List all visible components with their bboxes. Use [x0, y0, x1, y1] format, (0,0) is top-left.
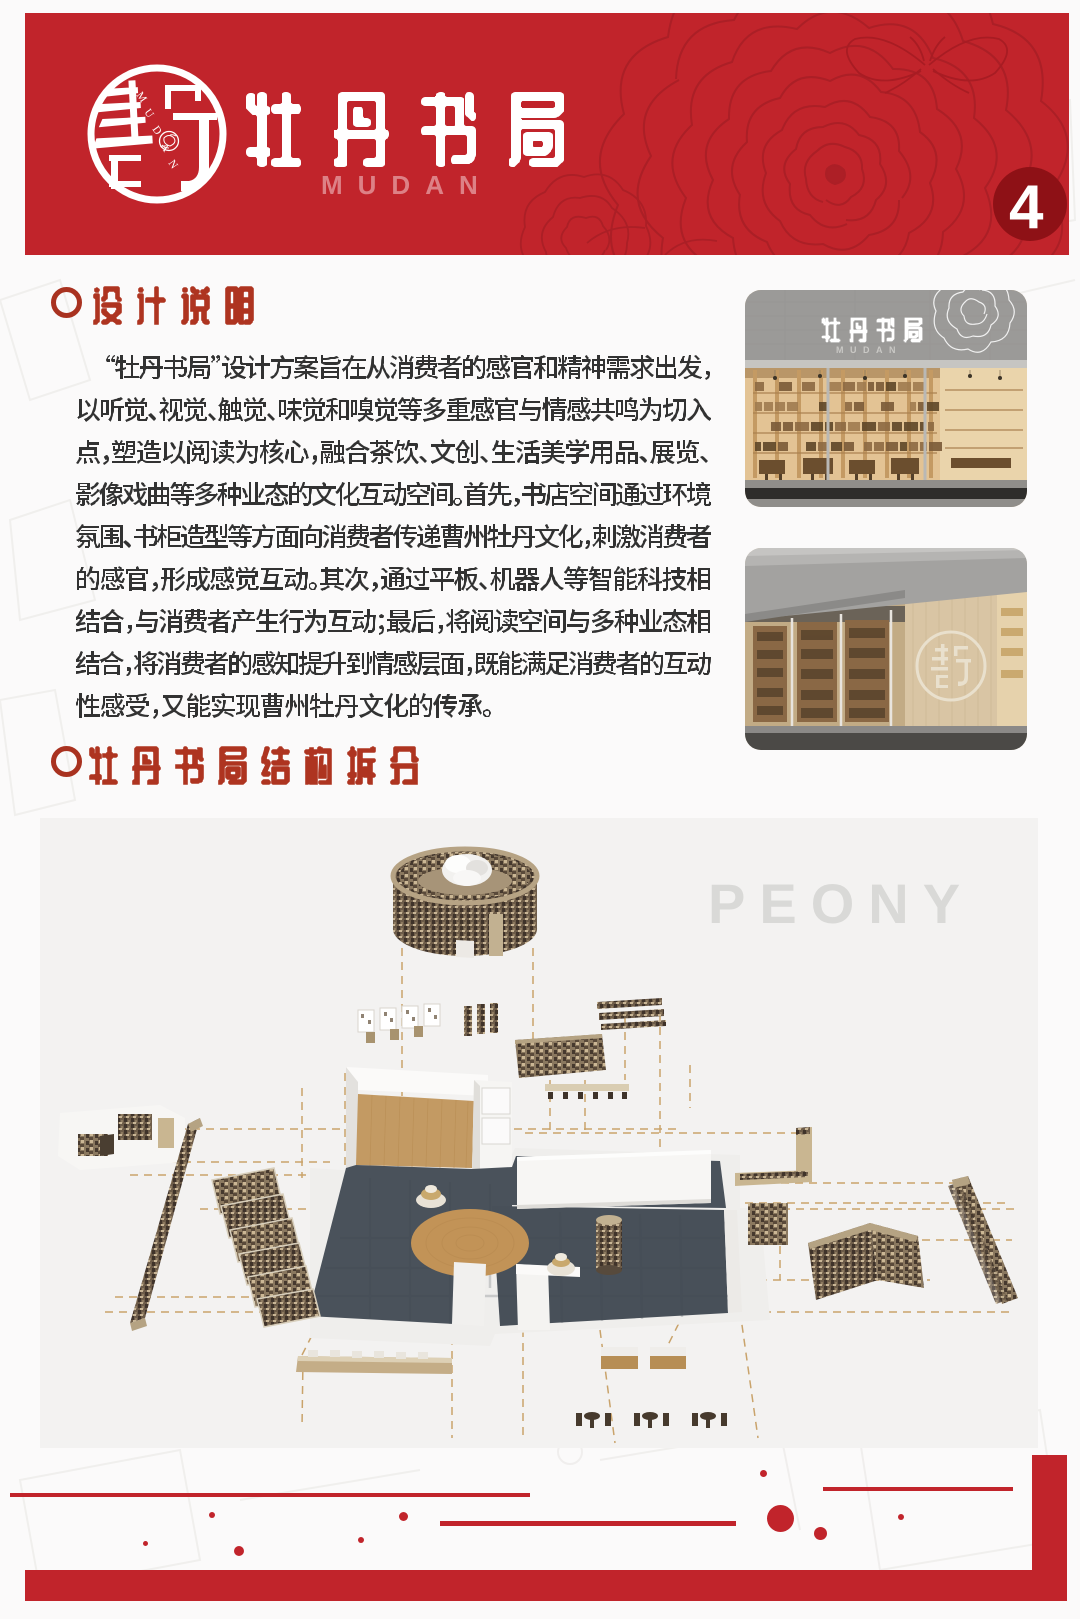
svg-text:PEONY: PEONY — [708, 872, 974, 935]
